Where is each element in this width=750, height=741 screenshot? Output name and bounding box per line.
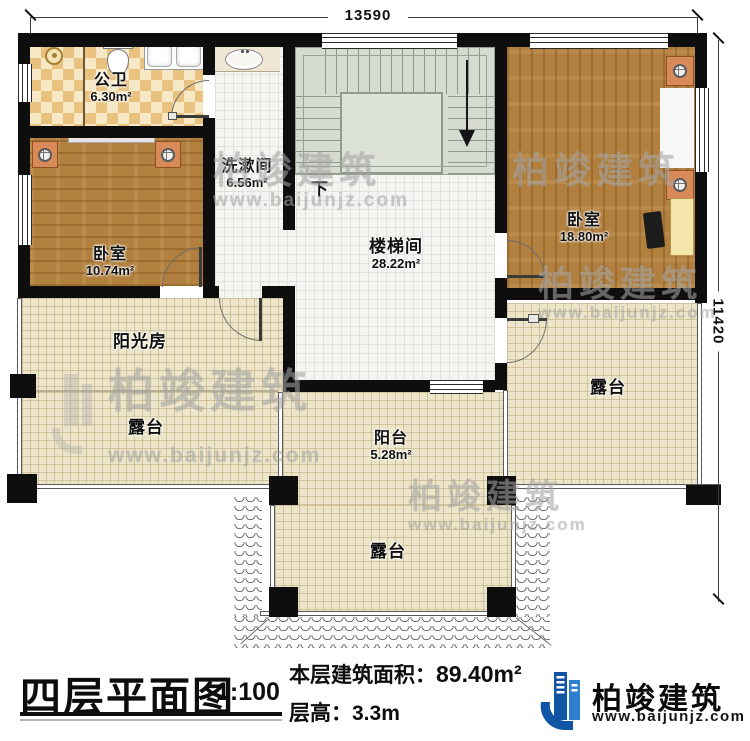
nightstand — [666, 56, 694, 86]
roof-tile-band-bottom — [234, 617, 550, 648]
room-area: 10.74m² — [86, 264, 134, 279]
column — [487, 587, 516, 617]
room-name: 洗漱间 — [221, 158, 272, 176]
faucet-icon — [246, 50, 249, 53]
wall-stub — [283, 286, 295, 392]
nightstand — [155, 141, 181, 168]
lamp-icon — [161, 148, 175, 162]
door-leaf-bedroom-left — [199, 247, 202, 287]
room-label-bedroom-right: 卧室 18.80m² — [560, 212, 608, 245]
stair-direction-arrow — [466, 60, 468, 132]
room-name: 公卫 — [94, 72, 128, 90]
room-label-stair-hall: 楼梯间 28.22m² — [369, 237, 423, 271]
room-name: 露台 — [590, 378, 626, 398]
room-name: 卧室 — [93, 246, 127, 264]
room-name: 露台 — [370, 542, 406, 562]
column — [269, 476, 298, 505]
column — [10, 374, 36, 398]
room-area: 6.56m² — [226, 176, 267, 191]
stair-down-label: 下 — [311, 175, 328, 200]
roof-tile-band-left — [234, 497, 262, 618]
width-dimension-label: 13590 — [328, 7, 408, 24]
railing-terrace-left-south — [17, 484, 278, 489]
wall-bedroom-right-west-lower — [495, 363, 507, 390]
floor-height-line: 层高：3.3m — [289, 697, 400, 727]
room-name: 楼梯间 — [369, 237, 423, 257]
room-area: 5.28m² — [370, 448, 411, 463]
door-handle-icon — [168, 112, 177, 120]
room-label-terrace-bottom: 露台 — [370, 542, 406, 562]
wall-bedroom-right-west-upper — [495, 33, 507, 233]
wall-top-1 — [18, 33, 322, 47]
roof-tile-band-right — [516, 497, 550, 618]
wall-top-2 — [457, 33, 530, 47]
wall-bathroom-south — [18, 126, 203, 138]
lamp-icon — [38, 148, 52, 162]
room-area: 6.30m² — [90, 90, 131, 105]
room-label-sunroom: 阳光房 — [113, 332, 167, 352]
railing-terrace-bottom-south — [260, 611, 516, 616]
wall-bedroom-right-south — [495, 288, 707, 300]
wall-stairs-west — [283, 33, 295, 230]
wall-south-2 — [203, 286, 219, 298]
room-label-terrace-left: 露台 — [128, 418, 164, 438]
room-name: 阳光房 — [113, 332, 167, 352]
room-label-terrace-right: 露台 — [590, 378, 626, 398]
sliding-door-hall-south — [430, 380, 483, 394]
top-dimension-extension-left — [30, 17, 31, 33]
wall-south-1 — [18, 286, 160, 298]
room-name: 卧室 — [567, 212, 601, 230]
room-label-bedroom-left: 卧室 10.74m² — [86, 246, 134, 279]
room-name: 阳台 — [374, 430, 408, 448]
column — [686, 485, 721, 505]
sunroom-terrace-divider-line — [22, 390, 278, 392]
lamp-icon — [673, 178, 687, 192]
bed-sheet — [660, 88, 694, 168]
window-top-bedroom-right — [530, 33, 668, 49]
washbasin-icon — [225, 49, 263, 70]
column — [487, 476, 516, 505]
bathroom-partition-line — [83, 47, 85, 126]
height-dimension-label: 11420 — [710, 292, 727, 352]
window-top-stairs — [322, 33, 457, 49]
lamp-icon — [673, 64, 687, 78]
title-underline-2 — [20, 719, 282, 721]
room-name: 露台 — [128, 418, 164, 438]
door-leaf-bedroom-right — [507, 275, 545, 278]
room-label-balcony: 阳台 5.28m² — [370, 430, 411, 463]
top-dimension-extension-right — [697, 17, 698, 33]
column — [7, 474, 37, 503]
room-area: 28.22m² — [372, 257, 420, 272]
faucet-icon — [241, 50, 244, 53]
wall-hall-south — [295, 380, 430, 392]
shower-drain-center-icon — [52, 53, 57, 58]
desk — [670, 198, 694, 256]
sink-icon — [176, 44, 201, 67]
sink-icon — [147, 44, 172, 67]
column — [269, 587, 298, 617]
stair-guardrail-line — [303, 55, 487, 167]
floor-area-label: 本层建筑面积： — [289, 664, 436, 687]
window-left-bedroom — [18, 175, 32, 245]
plan-scale: 1:100 — [216, 678, 280, 707]
room-label-bathroom: 公卫 6.30m² — [90, 72, 131, 105]
brand-website: www.baijunjz.com — [592, 708, 745, 725]
door-handle-icon — [528, 314, 539, 323]
nightstand — [32, 141, 58, 168]
wall-divider-upper — [203, 33, 215, 75]
wall-hall-south-2 — [483, 380, 495, 392]
brand-logo-icon — [534, 668, 588, 738]
wall-divider-lower — [203, 118, 215, 298]
floor-area-line: 本层建筑面积：89.40m² — [289, 659, 522, 689]
stair-direction-arrowhead-icon — [459, 130, 475, 147]
door-leaf-terrace-gate — [507, 318, 547, 321]
window-right-bedroom — [695, 88, 709, 172]
window-left-bathroom — [18, 64, 32, 102]
title-underline — [20, 712, 282, 716]
room-area: 18.80m² — [560, 230, 608, 245]
floor-area-value: 89.40m² — [436, 661, 522, 687]
nightstand — [666, 170, 694, 200]
railing-right — [697, 303, 702, 489]
floor-plan-canvas: 13590 11420 下 — [0, 0, 750, 741]
room-label-washroom: 洗漱间 6.56m² — [221, 158, 272, 191]
door-leaf-sunroom — [259, 298, 262, 341]
terrace-left-floor — [22, 392, 278, 484]
